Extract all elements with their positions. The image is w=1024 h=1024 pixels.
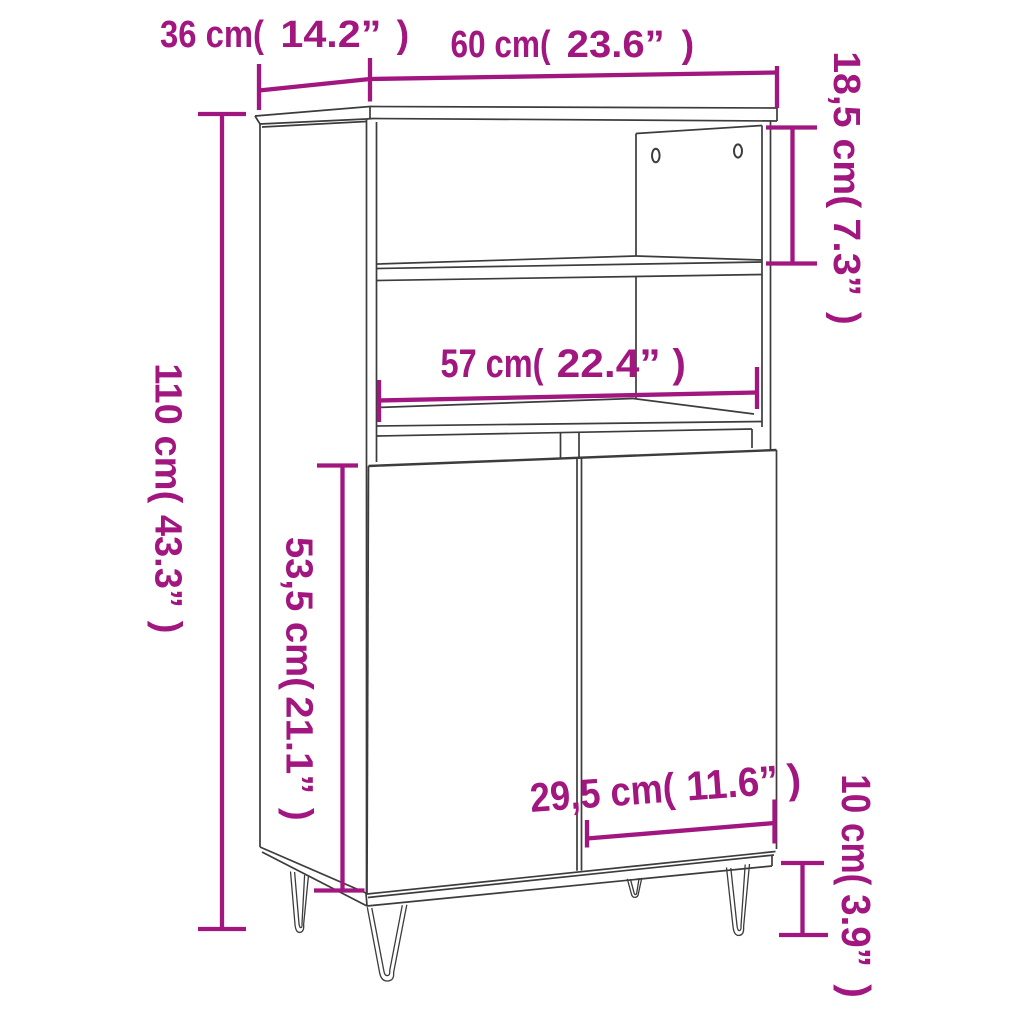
svg-text:110 cm(43.3”): 110 cm(43.3”) <box>147 363 189 633</box>
svg-text:18,5 cm(7.3”): 18,5 cm(7.3”) <box>825 51 867 324</box>
svg-text:60 cm(23.6”): 60 cm(23.6”) <box>451 23 695 65</box>
svg-text:53,5 cm(21.1”): 53,5 cm(21.1”) <box>278 537 320 821</box>
svg-text:57 cm(22.4”): 57 cm(22.4”) <box>441 342 686 386</box>
svg-text:36 cm(14.2”): 36 cm(14.2”) <box>160 13 409 55</box>
